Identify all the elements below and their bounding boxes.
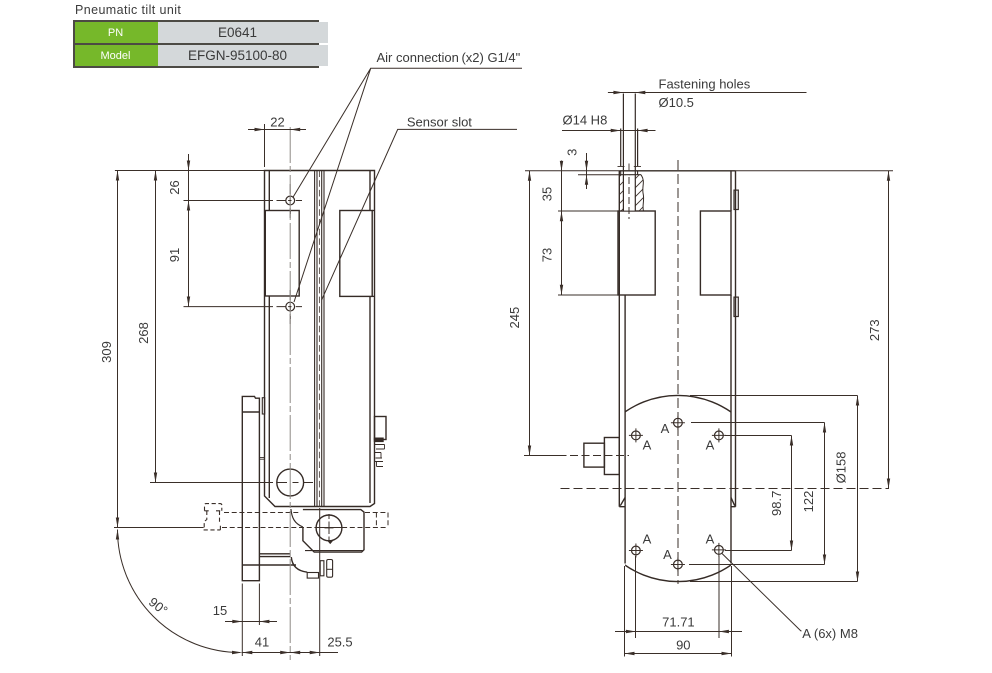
svg-text:91: 91 xyxy=(167,248,182,262)
svg-text:A: A xyxy=(661,421,670,436)
svg-text:Ø14 H8: Ø14 H8 xyxy=(563,113,608,128)
svg-text:26: 26 xyxy=(167,180,182,194)
svg-text:245: 245 xyxy=(507,307,522,329)
svg-text:A: A xyxy=(706,532,715,547)
svg-text:90°: 90° xyxy=(146,594,171,618)
svg-text:35: 35 xyxy=(540,187,555,201)
svg-text:A: A xyxy=(643,532,652,547)
svg-text:A: A xyxy=(643,438,652,453)
svg-text:90: 90 xyxy=(676,637,690,652)
svg-text:A (6x) M8: A (6x) M8 xyxy=(802,626,858,641)
svg-text:Fastening holes: Fastening holes xyxy=(659,77,751,92)
svg-text:122: 122 xyxy=(801,491,816,513)
svg-text:3: 3 xyxy=(564,149,579,156)
svg-text:71.71: 71.71 xyxy=(662,615,695,630)
svg-text:73: 73 xyxy=(540,248,555,262)
svg-text:273: 273 xyxy=(867,319,882,341)
svg-text:A: A xyxy=(663,547,672,562)
svg-text:A: A xyxy=(706,438,715,453)
svg-text:25.5: 25.5 xyxy=(327,635,352,650)
svg-text:Air connection (x2) G1/4": Air connection (x2) G1/4" xyxy=(377,50,521,65)
svg-text:41: 41 xyxy=(255,635,269,650)
svg-text:Ø158: Ø158 xyxy=(833,451,848,483)
svg-text:Ø10.5: Ø10.5 xyxy=(659,95,694,110)
svg-text:15: 15 xyxy=(213,603,227,618)
svg-text:268: 268 xyxy=(136,322,151,344)
svg-text:98.7: 98.7 xyxy=(769,491,784,516)
svg-text:Sensor slot: Sensor slot xyxy=(407,114,472,129)
svg-text:22: 22 xyxy=(270,114,284,129)
svg-text:309: 309 xyxy=(99,341,114,363)
